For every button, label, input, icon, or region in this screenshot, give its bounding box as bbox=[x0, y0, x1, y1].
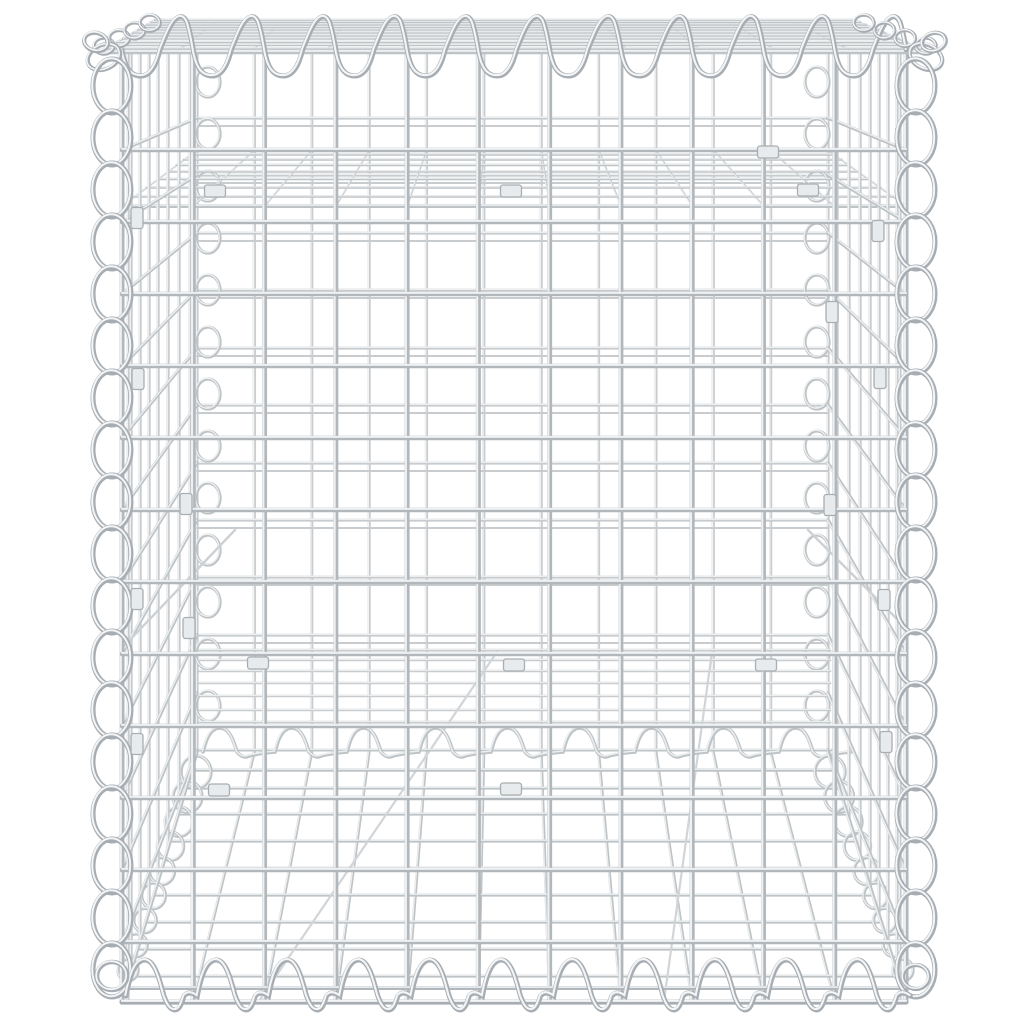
wire-clip bbox=[205, 185, 226, 197]
back-panel-grid bbox=[196, 52, 828, 750]
wire-clip bbox=[131, 734, 143, 755]
wire-clip bbox=[878, 590, 890, 611]
wire-clip bbox=[501, 783, 522, 795]
floor-back-spiral bbox=[202, 727, 851, 757]
wire-clip bbox=[131, 208, 143, 229]
wire-clip bbox=[131, 589, 143, 610]
wire-clip bbox=[501, 185, 522, 197]
floor-mesh bbox=[121, 649, 906, 1001]
wire-clip bbox=[874, 368, 886, 389]
wire-clip bbox=[248, 657, 269, 669]
wire-clip bbox=[798, 184, 819, 196]
wire-clip bbox=[504, 659, 525, 671]
wire-clip bbox=[758, 146, 779, 158]
gabion-basket-illustration bbox=[0, 0, 1024, 1024]
wire-clip bbox=[880, 732, 892, 753]
wire-clip bbox=[209, 784, 230, 796]
wire-clip bbox=[180, 494, 192, 515]
wire-clip bbox=[756, 659, 777, 671]
wire-clip bbox=[183, 618, 195, 639]
wire-clip bbox=[826, 302, 838, 323]
product-image: Galvanized steel gabion wire mesh basket… bbox=[0, 0, 1024, 1024]
wire-clip bbox=[824, 495, 836, 516]
wire-clip bbox=[132, 369, 144, 390]
wire-clip bbox=[872, 221, 884, 242]
